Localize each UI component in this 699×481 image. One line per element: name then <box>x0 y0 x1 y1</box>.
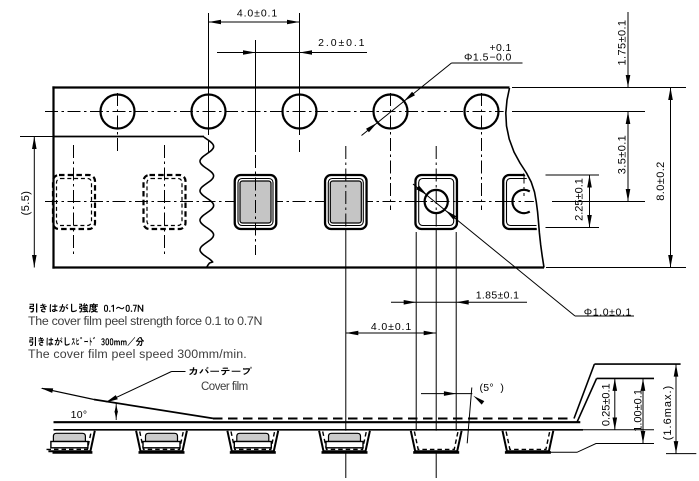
svg-text:2.25±0.1: 2.25±0.1 <box>573 178 585 221</box>
svg-text:1.75±0.1: 1.75±0.1 <box>616 20 628 66</box>
svg-text:(5° ): (5° ) <box>480 382 505 394</box>
svg-text:10°: 10° <box>71 409 88 421</box>
svg-text:(5.5): (5.5) <box>20 191 32 216</box>
svg-text:1.00±0.1: 1.00±0.1 <box>632 389 644 432</box>
svg-text:(1.6max.): (1.6max.) <box>662 385 674 440</box>
svg-text:1.85±0.1: 1.85±0.1 <box>476 289 520 301</box>
svg-text:Φ1.0±0.1: Φ1.0±0.1 <box>584 306 632 318</box>
svg-text:3.5±0.1: 3.5±0.1 <box>617 135 629 174</box>
svg-text:Φ1.5: Φ1.5 <box>464 52 489 64</box>
svg-text:2.0±0.1: 2.0±0.1 <box>318 37 366 49</box>
svg-text:8.0±0.2: 8.0±0.2 <box>655 161 667 200</box>
svg-text:4.0±0.1: 4.0±0.1 <box>371 321 412 333</box>
svg-text:−0.0: −0.0 <box>490 52 512 64</box>
svg-text:The cover film peel strength f: The cover film peel strength force 0.1 t… <box>28 314 262 328</box>
svg-text:The cover film peel speed 300m: The cover film peel speed 300mm/min. <box>28 347 247 361</box>
svg-text:0.25±0.1: 0.25±0.1 <box>600 383 612 426</box>
svg-text:4.0±0.1: 4.0±0.1 <box>237 8 278 20</box>
svg-text:Cover film: Cover film <box>201 381 248 393</box>
